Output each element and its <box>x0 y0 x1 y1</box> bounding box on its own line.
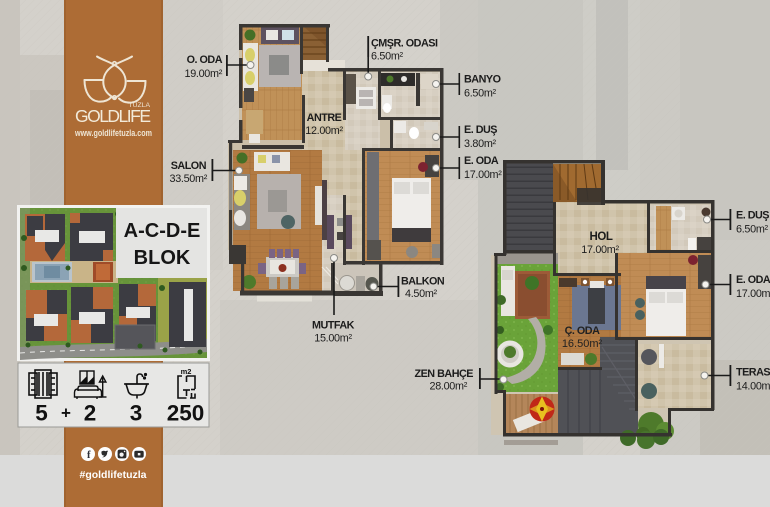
svg-text:m2: m2 <box>181 367 192 376</box>
svg-text:16.50m²: 16.50m² <box>562 338 603 350</box>
svg-text:ZEN BAHÇE: ZEN BAHÇE <box>415 368 474 380</box>
svg-text:ÇMŞR. ODASI: ÇMŞR. ODASI <box>371 38 438 50</box>
svg-text:GOLDLIFE: GOLDLIFE <box>75 106 151 126</box>
svg-text:15.00m²: 15.00m² <box>314 333 352 345</box>
svg-text:4.50m²: 4.50m² <box>405 288 438 300</box>
svg-text:6.50m²: 6.50m² <box>464 88 497 100</box>
svg-text:ANTRE: ANTRE <box>307 112 342 124</box>
svg-text:f: f <box>87 450 91 461</box>
svg-text:250: 250 <box>167 401 205 426</box>
svg-text:19.00m²: 19.00m² <box>184 68 222 80</box>
svg-text:HOL: HOL <box>589 231 612 243</box>
svg-text:BANYO: BANYO <box>464 74 501 86</box>
svg-text:5: 5 <box>35 401 48 426</box>
svg-text:12.00m²: 12.00m² <box>305 125 343 137</box>
svg-text:BLOK: BLOK <box>134 247 191 269</box>
svg-text:E. ODA: E. ODA <box>464 155 499 167</box>
svg-text:3.80m²: 3.80m² <box>464 138 497 150</box>
svg-text:14.00m²: 14.00m² <box>736 381 770 393</box>
svg-text:E. ODA: E. ODA <box>736 274 770 286</box>
svg-text:6.50m²: 6.50m² <box>371 51 404 63</box>
svg-text:BALKON: BALKON <box>401 276 445 288</box>
svg-text:Ç. ODA: Ç. ODA <box>565 325 600 337</box>
svg-text:E. DUŞ: E. DUŞ <box>464 124 497 136</box>
svg-text:MUTFAK: MUTFAK <box>312 320 355 332</box>
svg-text:2: 2 <box>84 401 97 426</box>
svg-text:3: 3 <box>130 401 143 426</box>
svg-text:6.50m²: 6.50m² <box>736 224 769 236</box>
svg-text:SALON: SALON <box>171 160 207 172</box>
svg-text:28.00m²: 28.00m² <box>429 381 467 393</box>
svg-text:#goldlifetuzla: #goldlifetuzla <box>80 469 147 481</box>
svg-text:O. ODA: O. ODA <box>187 54 223 66</box>
svg-text:E. DUŞ: E. DUŞ <box>736 210 769 222</box>
svg-text:17.00m²: 17.00m² <box>464 169 502 181</box>
svg-text:TERAS: TERAS <box>736 367 770 379</box>
svg-text:33.50m²: 33.50m² <box>169 173 207 185</box>
svg-text:17.00m²: 17.00m² <box>736 288 770 300</box>
svg-text:17.00m²: 17.00m² <box>581 244 619 256</box>
svg-text:www.goldlifetuzla.com: www.goldlifetuzla.com <box>74 128 152 138</box>
svg-text:A-C-D-E: A-C-D-E <box>124 220 201 242</box>
svg-text:+: + <box>61 404 71 423</box>
